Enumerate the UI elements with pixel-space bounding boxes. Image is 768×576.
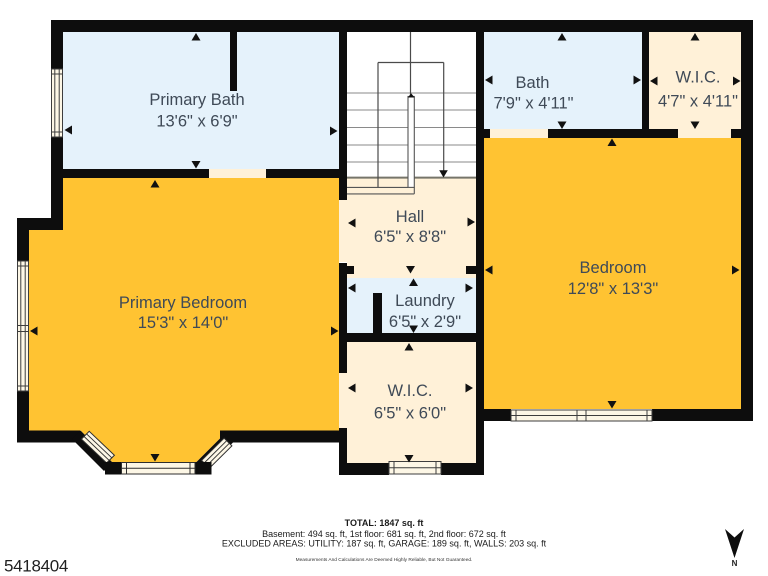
svg-text:Bath: Bath bbox=[516, 74, 550, 92]
svg-text:6'5" x 8'8": 6'5" x 8'8" bbox=[374, 228, 446, 246]
svg-text:N: N bbox=[732, 559, 738, 568]
svg-text:6'5" x 2'9": 6'5" x 2'9" bbox=[389, 313, 461, 331]
svg-text:Basement: 494 sq. ft, 1st floo: Basement: 494 sq. ft, 1st floor: 681 sq.… bbox=[262, 529, 506, 539]
svg-text:Laundry: Laundry bbox=[395, 292, 455, 310]
svg-text:TOTAL: 1847 sq. ft: TOTAL: 1847 sq. ft bbox=[345, 518, 424, 528]
svg-text:Bedroom: Bedroom bbox=[580, 259, 647, 277]
svg-text:4'7" x 4'11": 4'7" x 4'11" bbox=[658, 93, 738, 111]
svg-text:EXCLUDED AREAS: UTILITY: 187 s: EXCLUDED AREAS: UTILITY: 187 sq. ft, GAR… bbox=[222, 539, 547, 549]
svg-text:Primary Bedroom: Primary Bedroom bbox=[119, 294, 247, 312]
svg-text:7'9" x 4'11": 7'9" x 4'11" bbox=[493, 95, 573, 113]
svg-text:W.I.C.: W.I.C. bbox=[676, 69, 721, 87]
svg-text:12'8" x 13'3": 12'8" x 13'3" bbox=[568, 280, 659, 298]
svg-text:Measurements And Calculations: Measurements And Calculations Are Deemed… bbox=[296, 557, 473, 563]
svg-text:13'6" x 6'9": 13'6" x 6'9" bbox=[156, 113, 237, 131]
svg-text:6'5" x 6'0": 6'5" x 6'0" bbox=[374, 405, 446, 423]
svg-text:Primary Bath: Primary Bath bbox=[149, 91, 244, 109]
svg-text:15'3" x 14'0": 15'3" x 14'0" bbox=[138, 314, 229, 332]
svg-text:W.I.C.: W.I.C. bbox=[388, 382, 433, 400]
svg-text:Hall: Hall bbox=[396, 208, 424, 226]
svg-text:5418404: 5418404 bbox=[4, 557, 68, 576]
